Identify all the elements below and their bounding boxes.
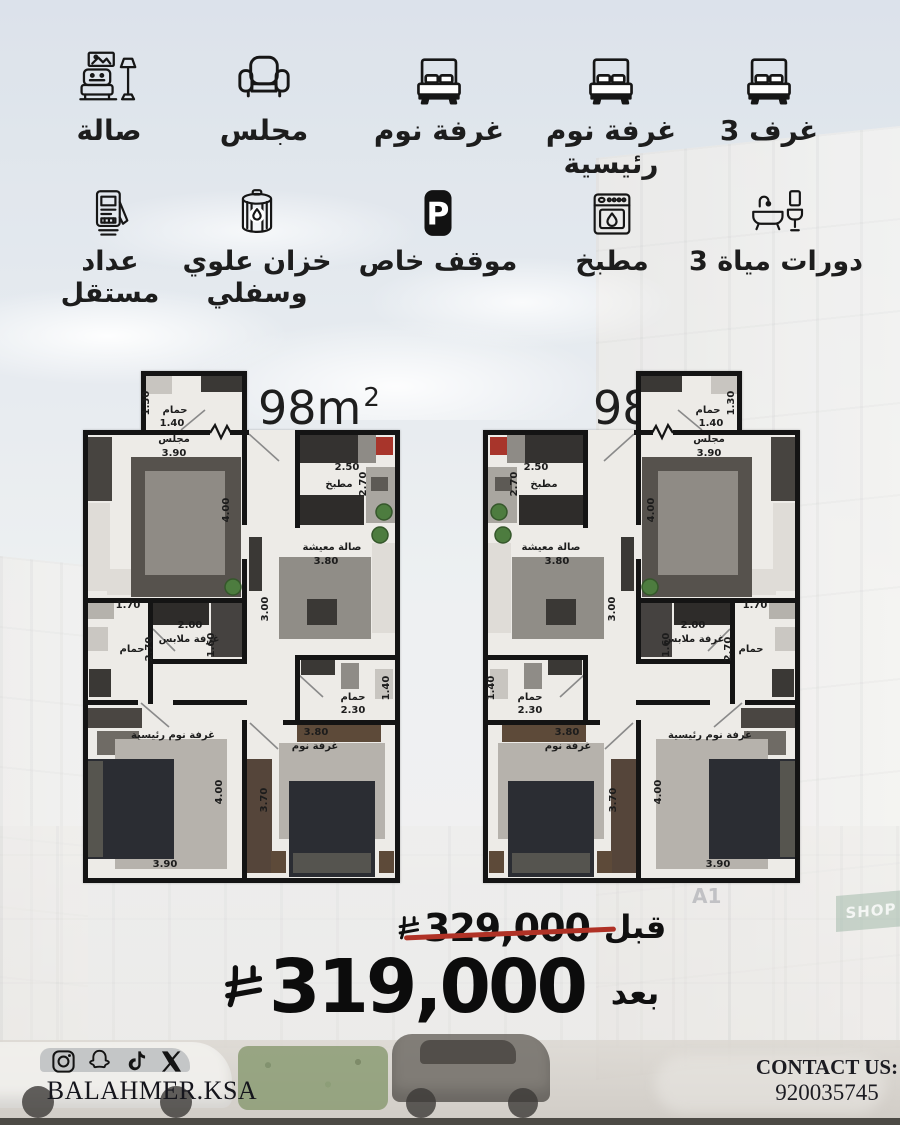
svg-text:3.70: 3.70 [259,788,270,813]
svg-text:حمام: حمام [696,405,721,416]
feature-majlis: مجلس [174,46,354,147]
feature-three-bathrooms: 3 دورات مياة [686,186,866,278]
svg-text:1.60: 1.60 [206,633,217,658]
svg-text:2.70: 2.70 [144,637,155,662]
snapchat-icon[interactable] [86,1048,113,1075]
svg-text:3.70: 3.70 [608,788,619,813]
feature-private-parking: P موقف خاص [348,186,528,278]
svg-text:2.70: 2.70 [509,472,520,497]
svg-text:3.90: 3.90 [153,859,178,870]
svg-text:2.70: 2.70 [723,637,734,662]
svg-text:غرفة نوم رئيسية: غرفة نوم رئيسية [131,730,215,741]
oven-icon [522,186,702,240]
feature-living-hall: صالة [19,46,199,147]
feature-kitchen: مطبخ [522,186,702,278]
feature-bedroom: غرفة نوم [349,46,529,147]
feature-label: موقف خاص [348,246,528,278]
svg-text:حمام: حمام [163,405,188,416]
car-wheel [406,1088,436,1118]
parking-icon: P [348,186,528,240]
svg-text:مجلس: مجلس [158,434,190,445]
saudi-riyal-icon [224,965,262,1009]
svg-text:4.00: 4.00 [214,780,225,805]
feature-label: مطبخ [522,246,702,278]
svg-text:1.70: 1.70 [116,600,141,611]
bath-icon [686,186,866,240]
svg-text:مجلس: مجلس [693,434,725,445]
sofa-icon [19,46,199,108]
svg-text:3.90: 3.90 [162,448,187,459]
svg-text:حمام: حمام [518,692,543,703]
svg-text:3.00: 3.00 [260,597,271,622]
feature-label: صالة [19,114,199,147]
gray-car-window [420,1040,516,1064]
svg-text:3.80: 3.80 [314,556,339,567]
svg-text:4.00: 4.00 [646,498,657,523]
feature-three-rooms: 3 غرف [679,46,859,147]
svg-text:صالة معيشة: صالة معيشة [303,542,362,553]
background-shop-sign: SHOP [836,890,900,932]
svg-text:1.40: 1.40 [486,676,497,701]
contact-label: CONTACT US: [748,1055,900,1080]
svg-text:مطبخ: مطبخ [530,479,557,490]
x-icon[interactable] [158,1048,185,1075]
svg-text:2.00: 2.00 [681,620,706,631]
svg-text:2.30: 2.30 [341,705,366,716]
svg-text:3.90: 3.90 [706,859,731,870]
price-after-number: 319,000 [269,944,585,1030]
bed-icon [349,46,529,108]
svg-text:3.80: 3.80 [555,727,580,738]
feature-master-bedroom: غرفة نومرئيسية [521,46,701,180]
svg-text:مطبخ: مطبخ [325,479,352,490]
armchair-icon [174,46,354,108]
svg-text:غرفة ملابس: غرفة ملابس [664,634,725,645]
svg-text:حمام: حمام [120,644,145,655]
svg-text:2.50: 2.50 [335,462,360,473]
svg-text:4.00: 4.00 [221,498,232,523]
svg-text:3.80: 3.80 [545,556,570,567]
contact-phone[interactable]: 920035745 [748,1080,900,1106]
social-handle[interactable]: BALAHMER.KSA [22,1076,282,1106]
svg-text:P: P [427,196,450,232]
svg-text:2.30: 2.30 [518,705,543,716]
svg-text:1.40: 1.40 [381,676,392,701]
svg-text:حمام: حمام [341,692,366,703]
svg-text:1.40: 1.40 [160,418,185,429]
svg-text:1.60: 1.60 [661,633,672,658]
svg-text:2.70: 2.70 [358,472,369,497]
social-icons [50,1048,185,1075]
svg-text:3.80: 3.80 [304,727,329,738]
tiktok-icon[interactable] [122,1048,149,1075]
background-unit-label: A1 [692,884,721,908]
bed-icon [679,46,859,108]
svg-text:4.00: 4.00 [653,780,664,805]
real-estate-flyer: SHOP A1 صالة مجلس غرفة نوم غرفة نومرئيسي… [0,0,900,1125]
svg-text:2.00: 2.00 [178,620,203,631]
feature-label: مجلس [174,114,354,147]
bottom-strip [0,1118,900,1125]
feature-label: خزان علويوسفلي [167,246,347,310]
svg-text:1.30: 1.30 [726,391,737,416]
svg-text:غرفة نوم: غرفة نوم [292,741,339,752]
svg-text:صالة معيشة: صالة معيشة [522,542,581,553]
floor-plan-right: حمام1.401.30مجلس3.904.002.50مطبخ2.70صالة… [483,371,800,883]
feature-label: غرفة نومرئيسية [521,114,701,180]
svg-text:3.00: 3.00 [607,597,618,622]
instagram-icon[interactable] [50,1048,77,1075]
svg-text:3.90: 3.90 [697,448,722,459]
svg-text:حمام: حمام [739,644,764,655]
svg-text:غرفة نوم رئيسية: غرفة نوم رئيسية [668,730,752,741]
price-after-label: بعد [600,974,670,1012]
feature-water-tank: خزان علويوسفلي [167,186,347,310]
price-after-value: 319,000 [255,944,585,1030]
floor-plan-left: حمام1.401.30مجلس3.904.002.50مطبخ2.70صالة… [83,371,400,883]
svg-text:غرفة نوم: غرفة نوم [545,741,592,752]
feature-label: غرفة نوم [349,114,529,147]
tank-icon [167,186,347,240]
svg-text:1.30: 1.30 [141,391,152,416]
car-wheel [508,1088,538,1118]
feature-label: 3 دورات مياة [686,246,866,278]
bed-icon [521,46,701,108]
svg-text:1.40: 1.40 [699,418,724,429]
feature-label: 3 غرف [679,114,859,147]
svg-text:1.70: 1.70 [743,600,768,611]
svg-text:2.50: 2.50 [524,462,549,473]
